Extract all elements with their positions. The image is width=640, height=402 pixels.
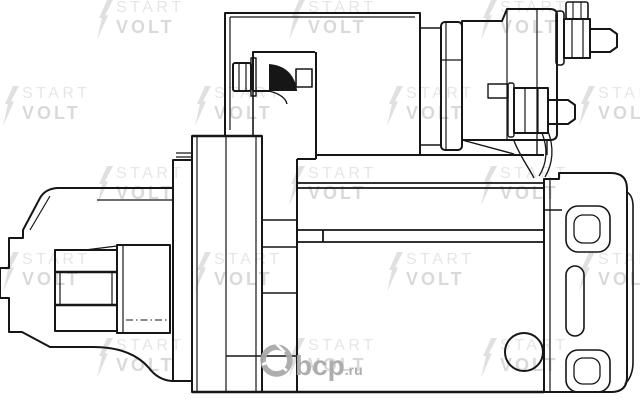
hex-nut-facets [572,19,583,58]
top-stud [566,2,588,19]
upper-rib-inner [574,215,600,243]
switch-terminal [488,83,575,137]
yoke-top-step [297,155,316,159]
rear-end-cap [544,173,633,392]
b-plus-terminal [556,2,617,65]
terminal-block [488,84,508,98]
lower-rib [566,350,610,392]
flange-plate [192,136,262,392]
lug-notch [296,69,312,87]
solenoid-front-bracket [441,22,462,150]
terminal-stud [590,29,617,52]
solenoid-case-inner [230,17,415,130]
front-bracket-inner [441,22,462,150]
pinion-gear-teeth-line [55,272,117,305]
abcp-circle-logo-icon [258,341,295,378]
solenoid-case [225,13,420,155]
housing-outline [0,188,192,381]
housing-step [173,160,192,188]
flange-inner-lines [197,136,256,392]
terminal-hex-nut [564,19,590,58]
solenoid [225,9,557,178]
stamp-suffix: .ru [345,363,363,377]
terminal-stud [548,100,575,124]
lug-bolt-head [233,63,251,91]
stamp-text: bcp [295,355,345,378]
technical-drawing-canvas: STARTVOLTSTARTVOLTSTARTVOLTSTARTVOLTSTAR… [0,0,640,402]
terminal-hex-nut [514,88,548,133]
pinion-gear-facets [60,272,112,305]
drain-hole [505,333,543,371]
yoke-top-band [297,183,544,188]
mounting-flange [192,136,262,392]
drive-end-housing [0,153,192,381]
abcp-stamp: bcp .ru [258,341,363,378]
yoke-mid-band [297,230,544,242]
solenoid-body-seams [507,9,537,140]
lug-fillet [269,91,287,104]
lever-boot-curve [514,141,534,178]
lower-rib-inner [574,358,600,384]
lug-bolt-facets [239,63,246,91]
center-slot [566,266,584,336]
solenoid-joint [420,28,441,145]
top-stud-facets [573,2,581,19]
housing-neck-line [176,153,192,157]
upper-rib [566,206,610,252]
solenoid-body [462,9,557,140]
pinion-gear [55,245,170,333]
pinion-gear-block [55,250,117,331]
hex-nut-facets [525,88,538,133]
lug-wedge [269,64,297,91]
plunger-boot [462,140,514,154]
